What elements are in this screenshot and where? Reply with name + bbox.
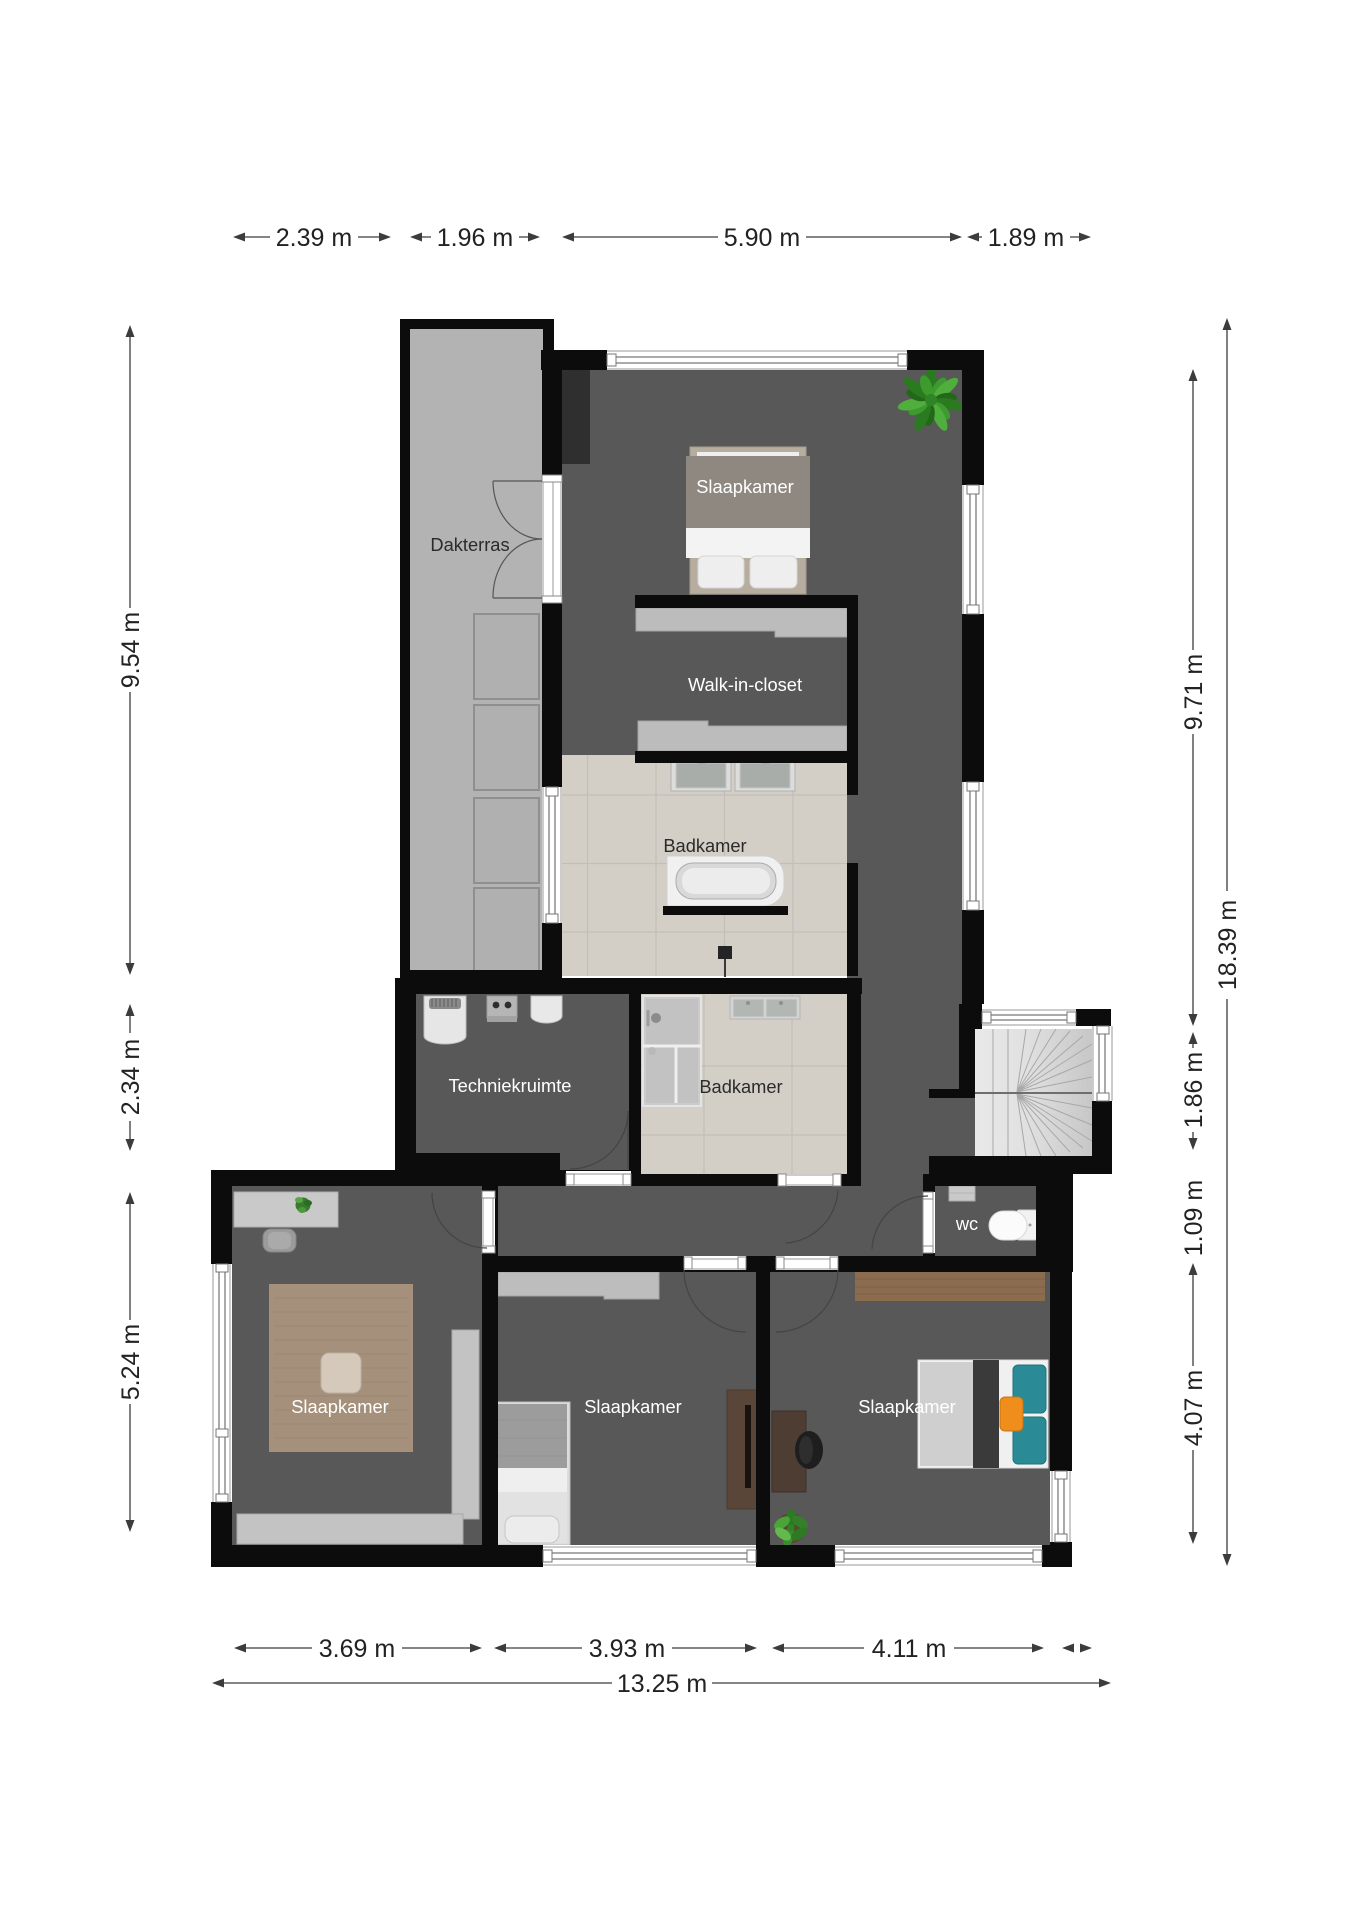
svg-text:5.90 m: 5.90 m bbox=[724, 224, 800, 252]
svg-text:Dakterras: Dakterras bbox=[430, 534, 509, 555]
svg-text:Slaapkamer: Slaapkamer bbox=[584, 1396, 682, 1417]
svg-text:2.34 m: 2.34 m bbox=[117, 1039, 145, 1115]
svg-text:9.71 m: 9.71 m bbox=[1180, 654, 1208, 730]
svg-text:3.93 m: 3.93 m bbox=[589, 1635, 665, 1663]
svg-text:4.07 m: 4.07 m bbox=[1180, 1370, 1208, 1446]
svg-text:Slaapkamer: Slaapkamer bbox=[858, 1396, 956, 1417]
svg-text:5.24 m: 5.24 m bbox=[117, 1324, 145, 1400]
svg-text:3.69 m: 3.69 m bbox=[319, 1635, 395, 1663]
svg-text:1.09 m: 1.09 m bbox=[1180, 1180, 1208, 1256]
svg-text:Badkamer: Badkamer bbox=[663, 835, 746, 856]
svg-text:Techniekruimte: Techniekruimte bbox=[449, 1075, 572, 1096]
svg-text:2.39 m: 2.39 m bbox=[276, 224, 352, 252]
svg-text:Slaapkamer: Slaapkamer bbox=[696, 476, 794, 497]
svg-text:Slaapkamer: Slaapkamer bbox=[291, 1396, 389, 1417]
svg-text:Walk-in-closet: Walk-in-closet bbox=[688, 674, 802, 695]
svg-text:18.39 m: 18.39 m bbox=[1214, 900, 1242, 990]
svg-text:1.96 m: 1.96 m bbox=[437, 224, 513, 252]
svg-text:wc: wc bbox=[955, 1213, 978, 1234]
svg-text:1.86 m: 1.86 m bbox=[1180, 1052, 1208, 1128]
svg-text:1.89 m: 1.89 m bbox=[988, 224, 1064, 252]
svg-text:4.11 m: 4.11 m bbox=[872, 1635, 947, 1663]
svg-text:9.54 m: 9.54 m bbox=[117, 612, 145, 688]
svg-text:Badkamer: Badkamer bbox=[699, 1076, 782, 1097]
svg-text:13.25 m: 13.25 m bbox=[617, 1670, 707, 1698]
